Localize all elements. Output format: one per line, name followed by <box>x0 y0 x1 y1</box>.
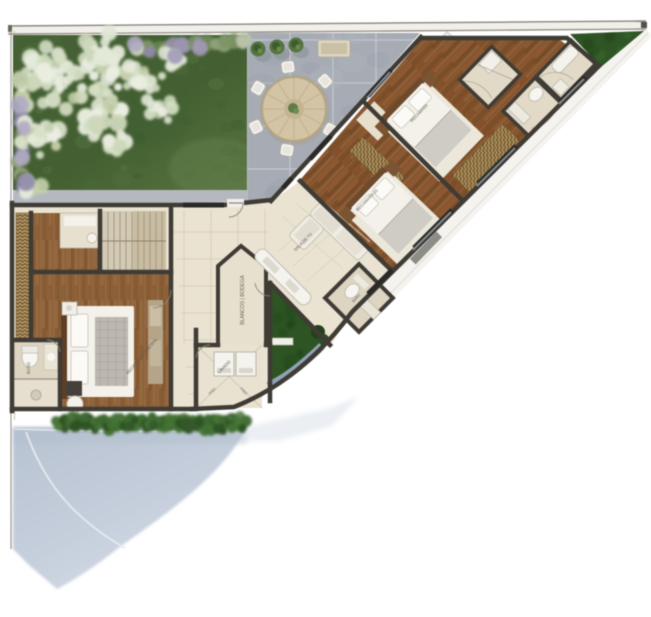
svg-text:BAÑO: BAÑO <box>26 361 31 374</box>
svg-text:BLANCOS | BODEGA: BLANCOS | BODEGA <box>240 275 246 325</box>
